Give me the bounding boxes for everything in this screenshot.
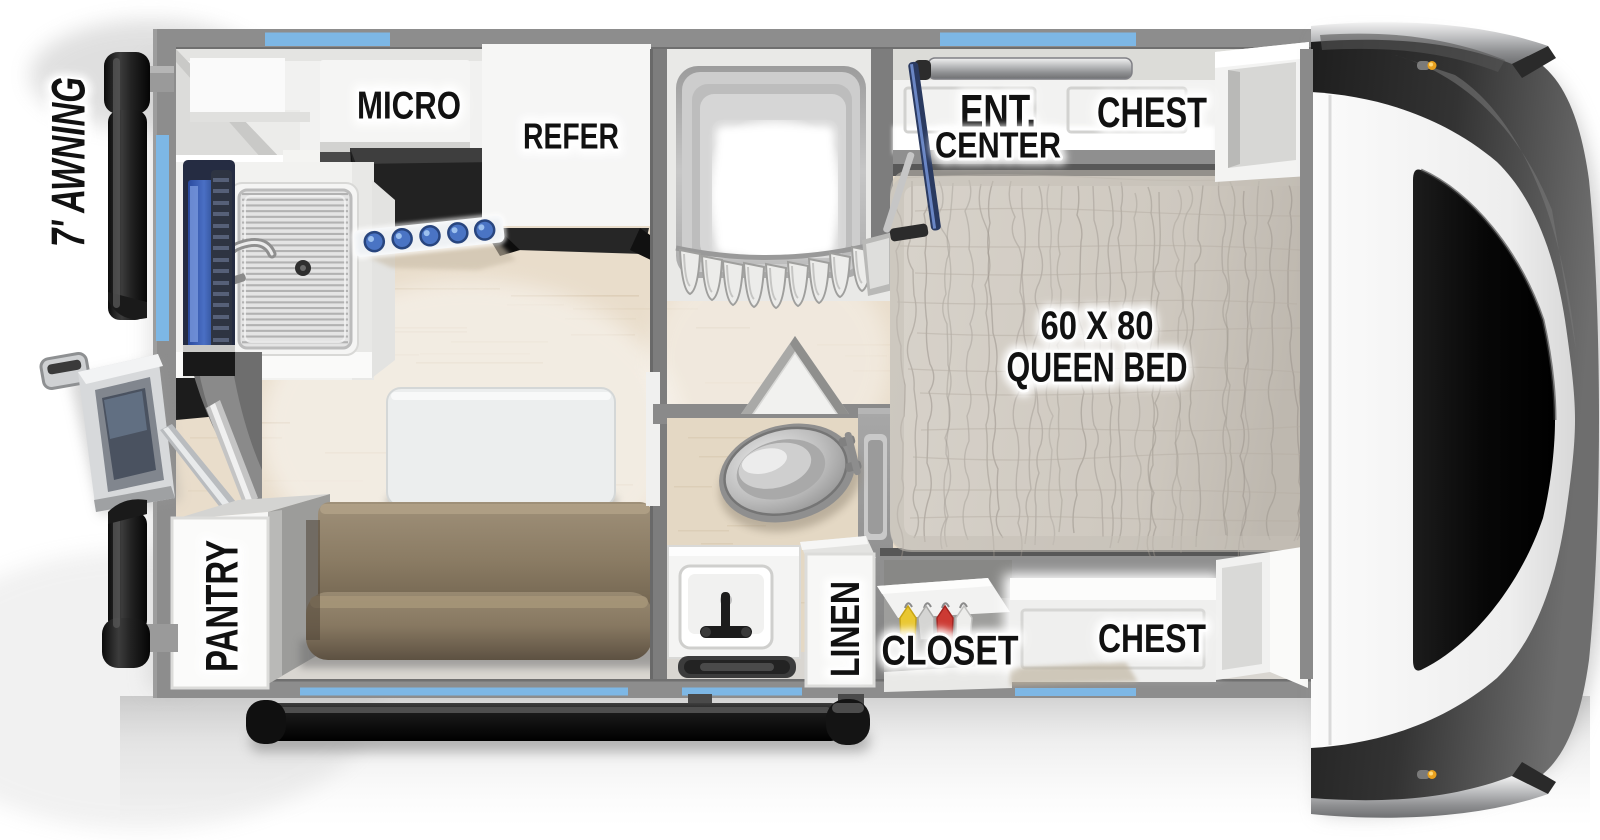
svg-text:MICRO: MICRO [357, 85, 461, 128]
svg-text:PANTRY: PANTRY [197, 540, 248, 672]
svg-text:CHEST: CHEST [1098, 617, 1206, 661]
svg-text:60 X 80: 60 X 80 [1041, 304, 1154, 348]
svg-text:CHEST: CHEST [1097, 89, 1207, 137]
svg-text:7' AWNING: 7' AWNING [42, 77, 95, 247]
svg-text:LINEN: LINEN [822, 581, 868, 677]
svg-text:CLOSET: CLOSET [882, 627, 1019, 674]
svg-text:QUEEN BED: QUEEN BED [1007, 344, 1188, 391]
svg-text:CENTER: CENTER [935, 125, 1061, 166]
svg-text:REFER: REFER [523, 116, 619, 157]
